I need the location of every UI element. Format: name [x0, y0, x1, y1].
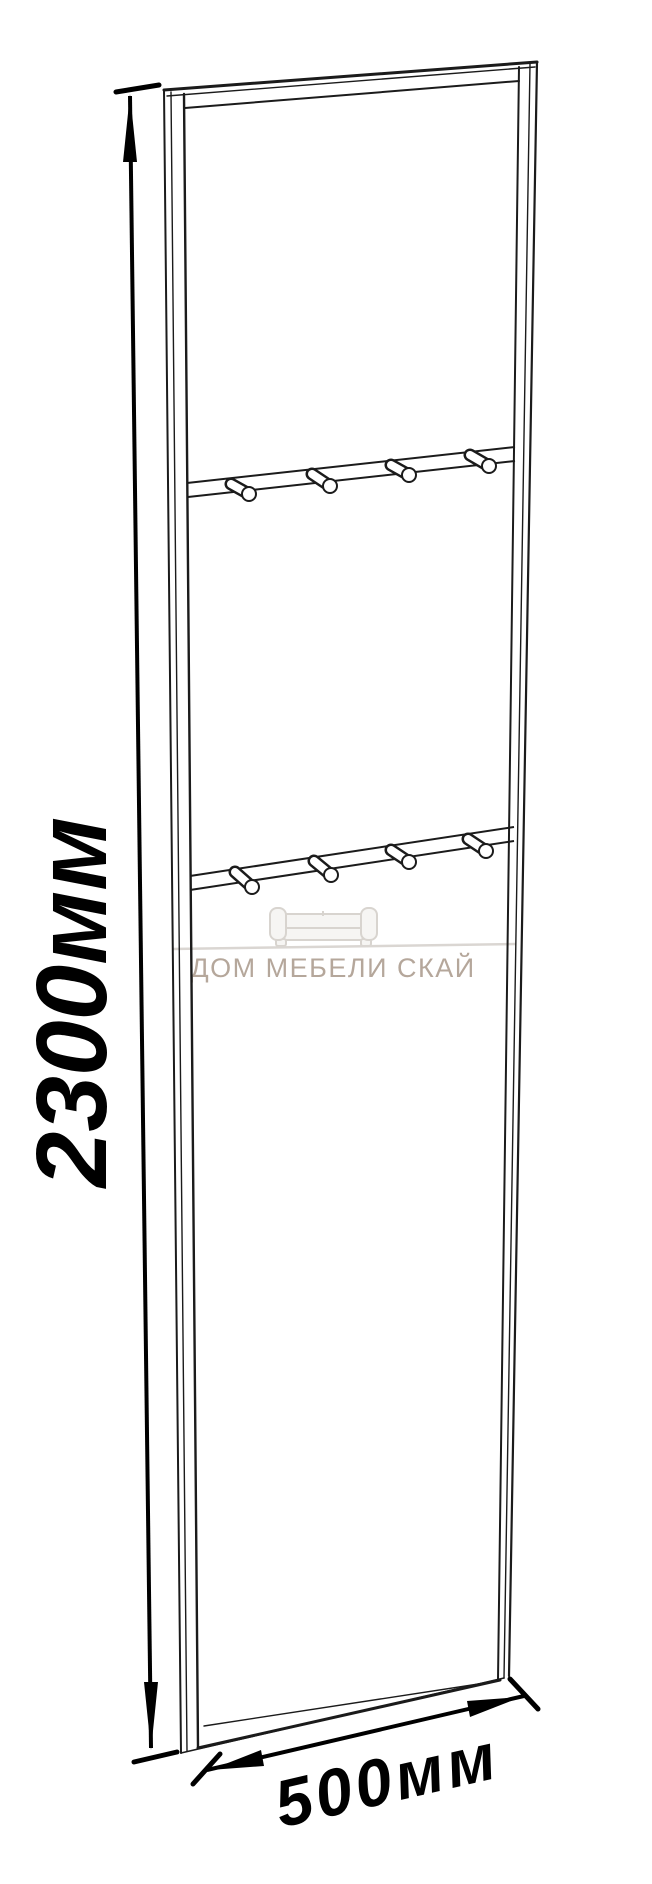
- height-dimension-bottom-tick: [134, 1752, 177, 1762]
- sofa-icon: [270, 908, 377, 946]
- panel-drawing-svg: ДОМ МЕБЕЛИ СКАЙ: [0, 0, 652, 1884]
- coat-hook: [231, 484, 256, 501]
- watermark-ground-line: [172, 944, 516, 949]
- panel-left-front-edge: [184, 94, 198, 1748]
- panel-top-edge-inner: [167, 67, 535, 96]
- watermark: ДОМ МЕБЕЛИ СКАЙ: [172, 908, 516, 983]
- technical-drawing-page: ДОМ МЕБЕЛИ СКАЙ: [0, 0, 652, 1884]
- height-arrow-up: [123, 94, 137, 162]
- coat-hook: [312, 474, 337, 493]
- width-dimension-label: 500мм: [268, 1718, 507, 1841]
- coat-hook: [235, 872, 259, 894]
- panel-top-edge: [164, 62, 537, 90]
- watermark-text: ДОМ МЕБЕЛИ СКАЙ: [190, 952, 475, 983]
- sofa-arm-left: [270, 908, 286, 940]
- height-dimension-label: 2300мм: [16, 817, 128, 1189]
- height-dimension-line: [130, 96, 151, 1748]
- width-dimension-right-tick: [510, 1679, 538, 1709]
- height-dimension-top-tick: [116, 85, 159, 92]
- height-arrow-down: [144, 1682, 158, 1750]
- width-arrow-right: [467, 1697, 521, 1717]
- panel-outline: [164, 62, 537, 1753]
- height-dimension: 2300мм: [16, 85, 177, 1762]
- coat-hook: [468, 839, 493, 858]
- coat-hook: [314, 861, 338, 882]
- coat-hooks-bottom-row: [235, 839, 493, 894]
- panel-right-outer-edge: [509, 62, 537, 1676]
- sofa-arm-right: [361, 908, 377, 940]
- coat-hook: [470, 455, 496, 473]
- coat-hook: [391, 850, 416, 869]
- width-dimension: 500мм: [193, 1679, 538, 1841]
- panel-bottom-strip-line: [204, 1681, 498, 1726]
- coat-hook: [391, 465, 416, 482]
